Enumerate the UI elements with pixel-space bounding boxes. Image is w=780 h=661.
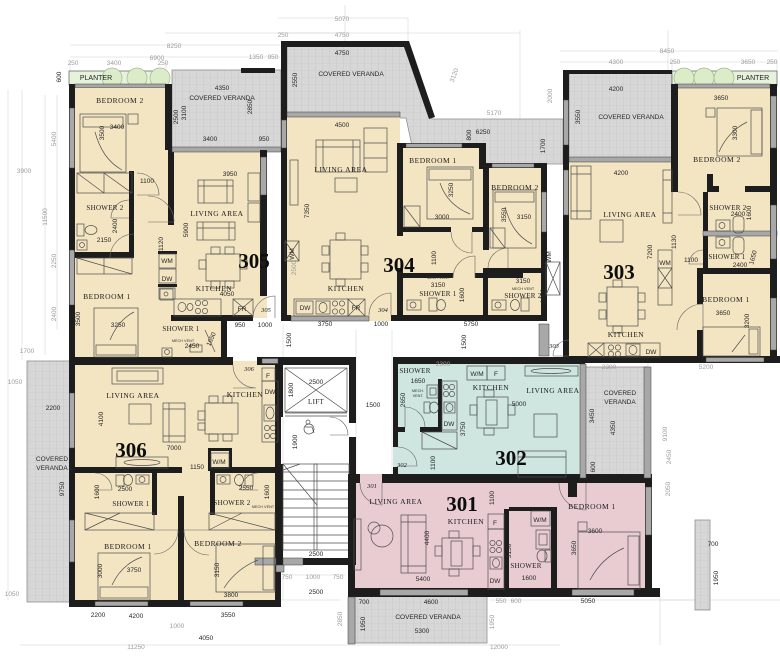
svg-text:KITCHEN: KITCHEN [473,383,509,392]
svg-text:WM: WM [546,251,553,263]
svg-text:1800: 1800 [288,382,295,397]
svg-text:LIVING AREA: LIVING AREA [190,209,243,218]
svg-text:1000: 1000 [306,574,321,581]
svg-text:2500: 2500 [173,109,180,124]
svg-text:7000: 7000 [167,445,182,452]
svg-text:2500: 2500 [118,486,133,493]
svg-text:1500: 1500 [461,334,468,349]
svg-text:250: 250 [158,60,169,67]
svg-text:302: 302 [495,446,527,470]
svg-text:1050: 1050 [5,591,20,598]
svg-text:7350: 7350 [304,203,311,218]
svg-text:MECH VENT: MECH VENT [252,505,275,509]
svg-text:302: 302 [396,462,408,469]
svg-text:5000: 5000 [512,401,527,408]
svg-text:1100: 1100 [489,491,496,505]
svg-text:750: 750 [333,574,344,581]
svg-text:301: 301 [446,492,478,516]
svg-text:700: 700 [359,599,370,606]
svg-text:SHOWER 1: SHOWER 1 [419,290,456,298]
svg-text:3500: 3500 [99,125,106,140]
svg-text:1500: 1500 [366,402,381,409]
svg-text:4350: 4350 [215,85,230,92]
svg-text:2500: 2500 [309,589,324,596]
svg-text:DW: DW [300,305,312,312]
svg-text:700: 700 [708,541,719,548]
svg-text:SHOWER 2: SHOWER 2 [504,292,541,300]
svg-text:5050: 5050 [581,598,596,605]
svg-text:2400: 2400 [733,262,748,269]
svg-text:8450: 8450 [660,48,675,55]
svg-text:303: 303 [548,343,560,350]
svg-text:LIFT: LIFT [308,398,324,406]
svg-text:DW: DW [646,349,658,356]
svg-text:1600: 1600 [540,288,547,303]
svg-text:KITCHEN: KITCHEN [608,330,644,339]
svg-text:3200: 3200 [744,313,751,328]
svg-text:VENT.: VENT. [413,394,424,398]
svg-text:FR: FR [238,306,247,313]
svg-text:2200: 2200 [46,405,61,412]
svg-text:550: 550 [496,598,507,605]
svg-text:250: 250 [670,59,681,66]
svg-text:1350: 1350 [249,54,264,61]
svg-text:1050: 1050 [8,379,23,386]
svg-text:5200: 5200 [699,364,714,371]
svg-text:4600: 4600 [424,599,439,606]
svg-text:2550: 2550 [239,485,254,492]
svg-text:3550: 3550 [221,612,236,619]
svg-text:600: 600 [590,461,597,472]
svg-text:3800: 3800 [224,592,239,599]
svg-text:3750: 3750 [318,321,333,328]
svg-text:2500: 2500 [291,260,298,275]
svg-text:3000: 3000 [435,214,450,221]
svg-text:4050: 4050 [199,635,214,642]
svg-text:COVERED: COVERED [604,390,636,397]
svg-text:3750: 3750 [460,421,467,436]
svg-text:3250: 3250 [448,182,455,197]
svg-text:3650: 3650 [571,540,578,555]
svg-text:5300: 5300 [415,628,430,635]
svg-text:11500: 11500 [42,208,49,226]
svg-text:BEDROOM 2: BEDROOM 2 [491,183,539,192]
svg-text:1950: 1950 [360,616,367,631]
svg-text:4400: 4400 [424,530,431,545]
svg-text:2400: 2400 [51,306,58,321]
svg-text:306: 306 [243,366,255,373]
svg-text:1600: 1600 [94,484,101,499]
svg-text:600: 600 [56,71,63,82]
svg-text:3150: 3150 [431,282,446,289]
svg-text:WM: WM [659,260,671,267]
svg-text:5400: 5400 [51,131,58,146]
svg-text:2450: 2450 [185,343,200,350]
svg-text:BEDROOM 1: BEDROOM 1 [702,295,750,304]
svg-text:LIVING AREA: LIVING AREA [314,165,367,174]
svg-text:8250: 8250 [167,43,182,50]
svg-text:BEDROOM 2: BEDROOM 2 [693,155,741,164]
svg-text:KITCHEN: KITCHEN [227,390,263,399]
svg-text:3750: 3750 [127,567,142,574]
svg-text:2000: 2000 [547,88,554,103]
svg-text:2450: 2450 [666,449,673,464]
svg-text:2150: 2150 [97,237,112,244]
svg-text:4750: 4750 [335,50,350,57]
svg-text:4500: 4500 [335,122,350,129]
svg-text:3450: 3450 [589,408,596,423]
svg-text:4350: 4350 [610,420,617,435]
svg-text:SHOWER: SHOWER [510,562,541,570]
svg-text:3100: 3100 [181,105,188,120]
svg-text:950: 950 [235,322,246,329]
svg-text:3300: 3300 [732,125,739,140]
svg-text:3150: 3150 [517,214,532,221]
svg-text:9100: 9100 [662,426,669,441]
svg-text:DW: DW [444,421,456,428]
svg-text:950: 950 [268,54,279,61]
svg-text:2400: 2400 [112,218,119,233]
svg-text:VERANDA: VERANDA [604,399,636,406]
svg-text:4750: 4750 [335,32,350,39]
svg-text:SHOWER 2: SHOWER 2 [86,204,123,212]
svg-text:5170: 5170 [487,110,502,117]
svg-text:1700: 1700 [20,348,35,355]
svg-text:3950: 3950 [223,171,238,178]
svg-text:1700: 1700 [540,138,547,153]
svg-text:SHOWER 1: SHOWER 1 [112,500,149,508]
svg-text:9750: 9750 [59,481,66,496]
svg-text:2250: 2250 [51,253,58,268]
svg-text:KITCHEN: KITCHEN [328,284,364,293]
svg-text:FR: FR [352,305,361,312]
svg-text:1100: 1100 [140,178,154,185]
svg-text:2300: 2300 [436,361,451,368]
svg-text:11250: 11250 [127,644,145,651]
svg-text:W/M: W/M [212,459,225,466]
svg-text:3150: 3150 [214,562,221,577]
svg-text:3600: 3600 [588,528,603,535]
svg-text:DW: DW [490,578,502,585]
svg-text:1100: 1100 [684,257,698,264]
svg-text:W/M: W/M [533,517,546,524]
svg-text:3550: 3550 [575,109,582,124]
svg-text:304: 304 [383,253,415,277]
svg-text:MECH VENT: MECH VENT [427,276,450,280]
svg-text:MECH VENT: MECH VENT [512,287,535,291]
svg-text:COVERED VERANDA: COVERED VERANDA [598,114,664,121]
svg-text:306: 306 [115,438,147,462]
svg-text:LIVING AREA: LIVING AREA [526,386,579,395]
svg-text:1000: 1000 [374,321,389,328]
svg-text:1600: 1600 [746,205,753,220]
svg-text:301: 301 [366,483,377,490]
svg-text:304: 304 [377,307,389,314]
svg-text:305: 305 [260,307,272,314]
svg-text:1600: 1600 [459,287,466,302]
svg-text:3000: 3000 [97,563,104,578]
svg-text:800: 800 [466,129,473,140]
svg-text:1950: 1950 [489,614,496,629]
svg-text:1650: 1650 [411,378,426,385]
svg-text:2850: 2850 [247,99,254,114]
svg-text:COVERED VERANDA: COVERED VERANDA [189,95,255,102]
svg-text:4100: 4100 [98,411,105,426]
svg-text:1950: 1950 [713,570,720,585]
svg-text:5400: 5400 [416,576,431,583]
svg-text:BEDROOM 2: BEDROOM 2 [194,539,242,548]
svg-text:4050: 4050 [220,291,235,298]
svg-text:1600: 1600 [522,575,537,582]
svg-text:SHOWER 1: SHOWER 1 [162,325,199,333]
svg-text:BEDROOM 1: BEDROOM 1 [568,502,616,511]
svg-text:KITCHEN: KITCHEN [448,517,484,526]
svg-text:COVERED VERANDA: COVERED VERANDA [395,614,461,621]
svg-text:250: 250 [278,32,289,39]
svg-text:PLANTER: PLANTER [80,75,112,82]
svg-text:4200: 4200 [609,86,624,93]
svg-text:305: 305 [238,249,270,273]
svg-text:W/M: W/M [470,371,483,378]
svg-text:750: 750 [282,574,293,581]
svg-text:VERANDA: VERANDA [36,465,68,472]
svg-text:3500: 3500 [75,311,82,326]
svg-text:COVERED VERANDA: COVERED VERANDA [318,71,384,78]
svg-text:4200: 4200 [614,170,629,177]
svg-text:250: 250 [767,59,778,66]
svg-text:2050: 2050 [665,481,672,496]
svg-text:5070: 5070 [335,16,350,23]
svg-text:3400: 3400 [203,136,218,143]
svg-text:2500: 2500 [309,551,324,558]
svg-text:2650: 2650 [400,392,407,407]
svg-text:1500: 1500 [286,332,293,347]
svg-text:7200: 7200 [647,244,654,259]
svg-text:DW: DW [265,389,277,396]
svg-text:303: 303 [603,260,635,284]
svg-text:LIVING AREA: LIVING AREA [369,497,422,506]
svg-text:3650: 3650 [716,310,731,317]
svg-text:BEDROOM 2: BEDROOM 2 [96,96,144,105]
svg-text:F: F [266,373,270,380]
svg-text:3250: 3250 [111,322,126,329]
svg-text:COVERED: COVERED [36,456,68,463]
svg-text:4300: 4300 [609,59,624,66]
svg-text:12000: 12000 [490,644,508,651]
svg-text:3900: 3900 [17,168,32,175]
svg-text:BEDROOM 1: BEDROOM 1 [83,292,131,301]
svg-text:LIVING AREA: LIVING AREA [603,210,656,219]
svg-text:2850: 2850 [337,611,344,626]
svg-text:1100: 1100 [430,456,437,470]
svg-text:F: F [494,371,498,378]
svg-text:5750: 5750 [464,321,479,328]
svg-text:3150: 3150 [516,278,531,285]
svg-text:2550: 2550 [292,72,299,87]
svg-text:1000: 1000 [170,623,185,630]
svg-text:3550: 3550 [501,207,508,222]
svg-text:3650: 3650 [741,59,756,66]
svg-text:BEDROOM 1: BEDROOM 1 [409,156,457,165]
svg-text:1100: 1100 [431,251,438,265]
svg-text:1600: 1600 [264,484,271,499]
svg-text:F: F [493,520,497,527]
svg-text:2500: 2500 [309,379,324,386]
svg-text:MECH VENT: MECH VENT [172,339,195,343]
svg-text:BEDROOM 1: BEDROOM 1 [104,542,152,551]
svg-text:3650: 3650 [714,95,729,102]
svg-text:4200: 4200 [129,613,144,620]
svg-text:600: 600 [511,598,522,605]
svg-text:950: 950 [259,136,270,143]
svg-text:2400: 2400 [731,211,746,218]
svg-text:2200: 2200 [91,612,106,619]
svg-text:DW: DW [162,276,174,283]
svg-text:1150: 1150 [190,464,204,471]
svg-text:1000: 1000 [258,322,273,329]
svg-text:3400: 3400 [110,124,125,131]
svg-text:1900: 1900 [292,434,299,449]
svg-text:SHOWER: SHOWER [399,367,430,375]
svg-text:6250: 6250 [476,129,491,136]
svg-text:LIVING AREA: LIVING AREA [106,391,159,400]
svg-text:PLANTER: PLANTER [737,75,769,82]
svg-text:250: 250 [68,60,79,67]
svg-text:WM: WM [289,248,296,260]
svg-text:1130: 1130 [671,235,678,249]
svg-text:2300: 2300 [602,364,617,371]
svg-text:3400: 3400 [107,60,122,67]
svg-text:SHOWER 1: SHOWER 1 [708,253,745,261]
svg-text:3150: 3150 [506,543,513,558]
svg-text:SHOWER 2: SHOWER 2 [213,499,250,507]
svg-text:5900: 5900 [183,222,190,237]
svg-text:WM: WM [161,258,173,265]
svg-text:1120: 1120 [158,237,165,251]
svg-text:MECH.: MECH. [412,389,424,393]
